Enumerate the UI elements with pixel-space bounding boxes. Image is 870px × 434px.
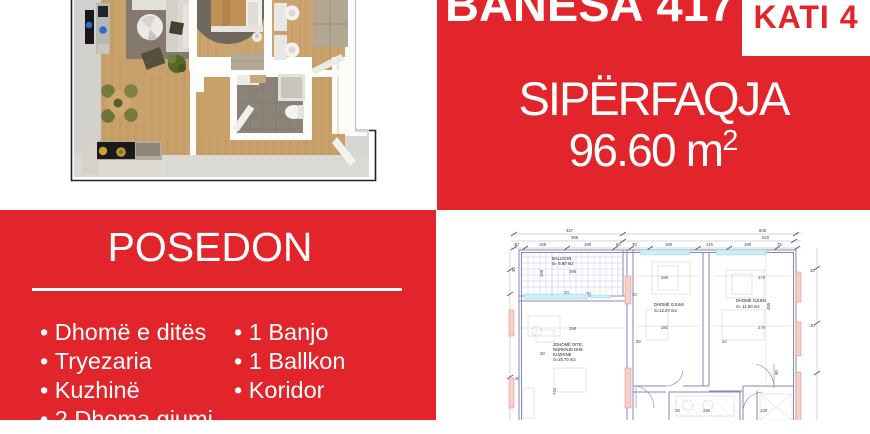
svg-text:270: 270 [758, 275, 766, 280]
svg-text:70: 70 [632, 242, 637, 247]
svg-text:620: 620 [762, 235, 770, 240]
svg-text:90: 90 [774, 370, 779, 375]
svg-text:20: 20 [540, 351, 545, 356]
svg-text:20: 20 [636, 339, 641, 344]
svg-text:S=20.70 m2: S=20.70 m2 [553, 357, 576, 362]
svg-text:398: 398 [569, 326, 577, 331]
svg-text:280: 280 [661, 325, 669, 330]
svg-text:30: 30 [514, 242, 519, 247]
svg-text:115: 115 [706, 242, 713, 247]
svg-text:150: 150 [539, 269, 544, 277]
svg-text:605: 605 [759, 228, 767, 233]
svg-text:S= 5.90 m2: S= 5.90 m2 [552, 261, 574, 266]
svg-text:30: 30 [810, 323, 815, 328]
svg-text:120: 120 [760, 408, 768, 413]
svg-text:180: 180 [744, 242, 752, 247]
svg-text:398: 398 [571, 235, 579, 240]
svg-text:60: 60 [616, 242, 621, 247]
svg-text:DHOMË GJUMI: DHOMË GJUMI [736, 298, 766, 303]
svg-text:280: 280 [703, 408, 711, 413]
svg-text:30: 30 [810, 268, 815, 273]
svg-text:180: 180 [584, 242, 592, 247]
svg-text:180: 180 [665, 242, 673, 247]
svg-text:427: 427 [566, 228, 574, 233]
svg-text:30: 30 [515, 376, 520, 381]
svg-text:280: 280 [661, 275, 669, 280]
svg-text:720: 720 [552, 387, 557, 395]
svg-text:S= 11.60 m2: S= 11.60 m2 [736, 304, 760, 309]
svg-text:30: 30 [511, 267, 516, 272]
svg-text:S=12.00 m2: S=12.00 m2 [654, 308, 677, 313]
svg-text:485: 485 [766, 302, 771, 310]
svg-text:75: 75 [777, 242, 782, 247]
svg-text:158: 158 [539, 242, 547, 247]
svg-text:DHOMË GJUMI: DHOMË GJUMI [654, 302, 684, 307]
svg-text:270: 270 [758, 325, 766, 330]
